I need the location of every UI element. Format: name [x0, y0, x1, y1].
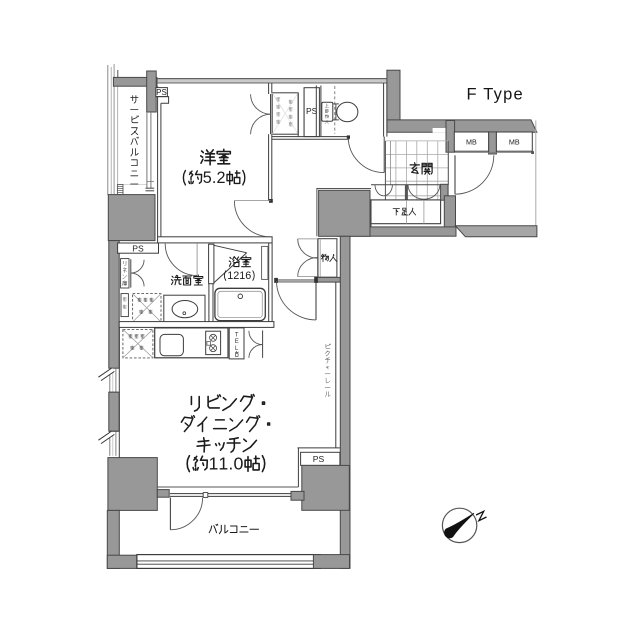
svg-text:2: 2 — [216, 169, 225, 187]
svg-text:ク: ク — [324, 351, 330, 358]
svg-text:0: 0 — [233, 454, 243, 474]
svg-text:5: 5 — [203, 169, 212, 187]
svg-text:E: E — [235, 339, 239, 345]
svg-text:T: T — [235, 333, 239, 339]
svg-text:6: 6 — [245, 270, 251, 282]
svg-text:PS: PS — [156, 88, 167, 97]
svg-text:F Type: F Type — [467, 86, 524, 104]
svg-text:MB: MB — [509, 137, 520, 146]
svg-text:1: 1 — [218, 454, 228, 474]
svg-text:PS: PS — [313, 454, 325, 464]
svg-text:MB: MB — [466, 137, 477, 146]
svg-text:1: 1 — [208, 454, 218, 474]
svg-text:PS: PS — [132, 243, 144, 253]
